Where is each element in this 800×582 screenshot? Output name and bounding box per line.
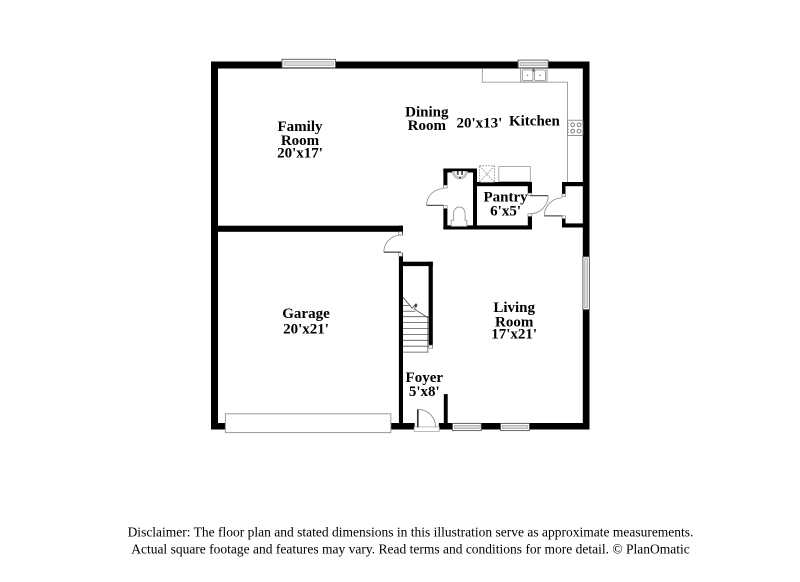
svg-text:Garage: Garage <box>282 306 330 322</box>
svg-text:Room: Room <box>408 118 447 134</box>
svg-text:17'x21': 17'x21' <box>491 327 537 343</box>
svg-text:Actual square footage and feat: Actual square footage and features may v… <box>131 542 690 557</box>
svg-text:20'x17': 20'x17' <box>277 146 323 162</box>
svg-text:20'x13': 20'x13' <box>456 116 502 132</box>
svg-text:Disclaimer: The floor plan and: Disclaimer: The floor plan and stated di… <box>128 525 694 540</box>
svg-text:6'x5': 6'x5' <box>490 204 521 220</box>
svg-text:Kitchen: Kitchen <box>509 114 560 130</box>
svg-text:5'x8': 5'x8' <box>409 384 440 400</box>
svg-text:20'x21': 20'x21' <box>283 322 329 338</box>
